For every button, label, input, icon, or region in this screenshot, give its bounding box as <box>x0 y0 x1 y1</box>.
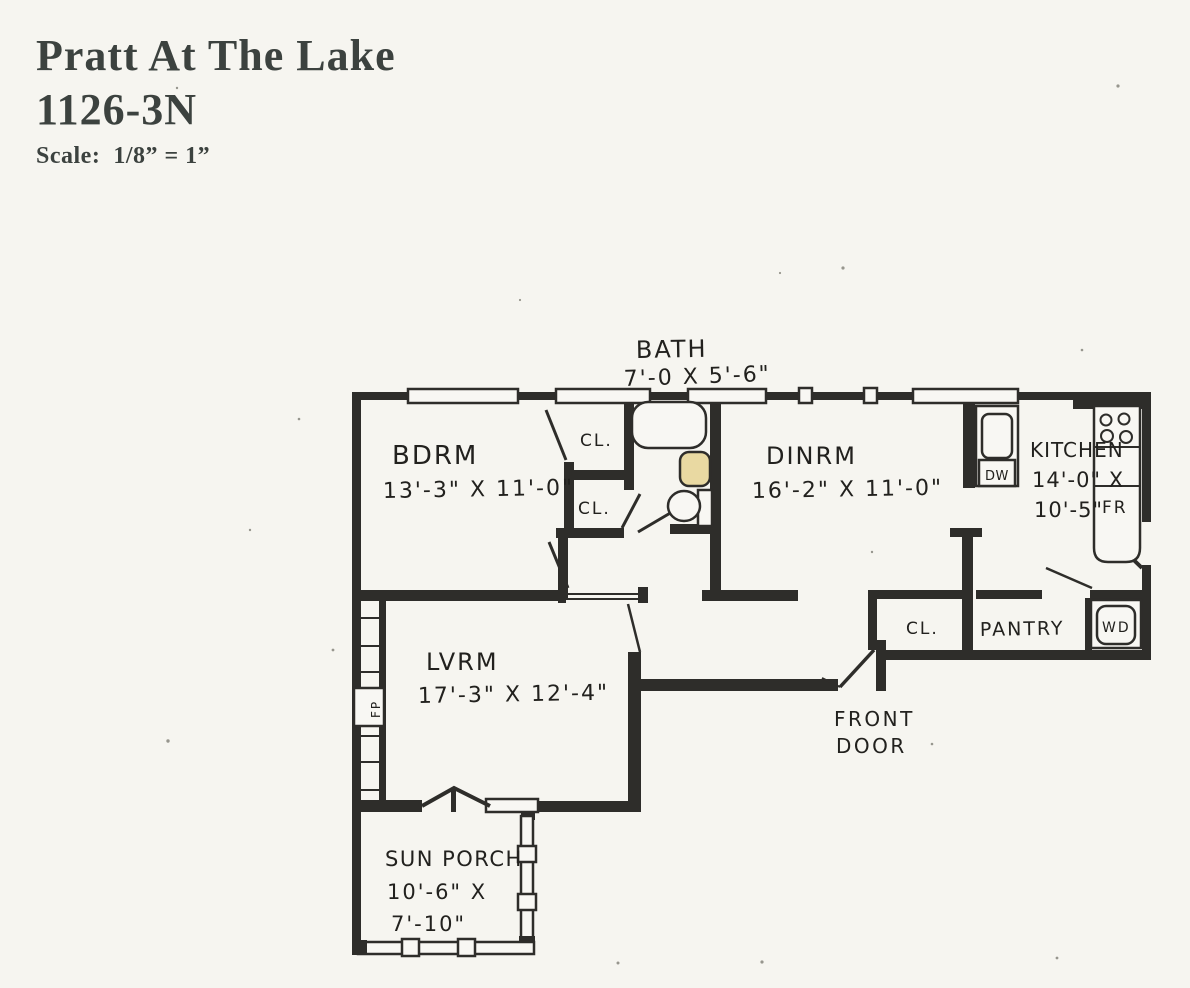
door-closet-upper <box>546 410 566 460</box>
sun-porch-dims1: 10'-6" X <box>387 880 487 904</box>
dinrm-label: DINRM <box>766 442 857 470</box>
porch-door-stub <box>451 788 456 812</box>
porch-south-mullion-a <box>402 939 419 956</box>
door-hall-lvrm <box>628 604 640 652</box>
window-lvrm-bottom <box>486 799 538 812</box>
bath-dims: 7'-0 X 5'-6" <box>623 362 771 392</box>
toilet-bowl <box>668 491 700 521</box>
window-bdrm-top <box>408 389 518 403</box>
lvrm-label: LVRM <box>426 648 499 676</box>
wall-closet-bottom <box>556 528 624 538</box>
sun-porch-label: SUN PORCH <box>385 847 523 871</box>
kitchen-label: KITCHEN <box>1030 438 1124 462</box>
front-door-label1: FRONT <box>834 707 915 731</box>
washer-dryer-label: WD <box>1102 620 1131 636</box>
closet-lower-label: CL. <box>578 499 611 519</box>
wall-strip-top-c <box>1090 590 1142 599</box>
dinrm-dims: 16'-2" X 11'-0" <box>752 476 944 504</box>
porch-east-mullion-b <box>518 894 536 910</box>
kitchen-dims1: 14'-0" X <box>1032 468 1124 492</box>
bdrm-label: BDRM <box>392 441 478 471</box>
door-bath <box>638 512 672 532</box>
wall-bottom-right-wing <box>884 650 1151 660</box>
window-dinrm-top <box>913 389 1018 403</box>
wall-right-lower <box>1142 565 1151 660</box>
kitchen-dims2: 10'-5" <box>1034 498 1103 522</box>
wall-stub-right <box>638 587 648 603</box>
wall-bdrm-bottom <box>352 590 562 601</box>
wall-strip-top-b <box>976 590 1042 599</box>
door-closet-lower <box>622 494 640 528</box>
wall-entry-bottom <box>630 679 838 691</box>
wall-lvrm-east <box>628 652 641 812</box>
wall-entry-jamb <box>876 640 886 691</box>
fireplace-label: FP <box>369 700 383 718</box>
wall-lvrm-bottom-left <box>352 800 422 812</box>
window-bath-top <box>688 389 766 403</box>
porch-window-east <box>521 816 533 942</box>
lvrm-dims: 17'-3" X 12'-4" <box>418 681 610 709</box>
floor-plan-drawing: BATH 7'-0 X 5'-6" BDRM 13'-3" X 11'-0" C… <box>0 0 1190 988</box>
wall-closet-pantry-divider <box>962 533 973 653</box>
wall-stub-left <box>558 587 566 603</box>
front-door-label2: DOOR <box>836 734 907 758</box>
scan-noise <box>166 84 1119 964</box>
wall-closet-bath-divider <box>624 396 634 490</box>
wall-kitchen-dinrm-upper <box>963 400 975 488</box>
porch-sw-corner <box>352 940 367 955</box>
wall-strip-top-a <box>868 590 965 599</box>
wall-entry-closet-west <box>868 590 877 650</box>
wall-lvrm-bottom-right <box>536 801 628 812</box>
pantry-label: PANTRY <box>980 618 1065 641</box>
door-kitchen-hall <box>1046 568 1092 588</box>
window-mullion-b <box>864 388 877 403</box>
porch-window-south <box>358 942 534 954</box>
porch-south-mullion-b <box>458 939 475 956</box>
dishwasher-label: DW <box>985 469 1009 484</box>
bathtub <box>632 402 706 448</box>
dishwasher-inner <box>982 414 1012 458</box>
bath-label: BATH <box>636 335 708 364</box>
wall-right-upper <box>1142 392 1151 522</box>
wall-dinrm-south-cap <box>702 590 798 601</box>
window-mullion-a <box>799 388 812 403</box>
fridge-label: FR <box>1102 498 1128 518</box>
scanned-floorplan-page: Pratt At The Lake 1126-3N Scale: 1/8” = … <box>0 0 1190 988</box>
bdrm-dims: 13'-3" X 11'-0" <box>383 476 575 504</box>
entry-closet-label: CL. <box>906 619 939 639</box>
closet-upper-label: CL. <box>580 431 613 451</box>
bath-sink <box>680 452 710 486</box>
wall-left <box>352 392 361 955</box>
wall-divider-cap <box>950 528 982 537</box>
door-front <box>840 650 874 687</box>
sun-porch-dims2: 7'-10" <box>391 912 466 936</box>
